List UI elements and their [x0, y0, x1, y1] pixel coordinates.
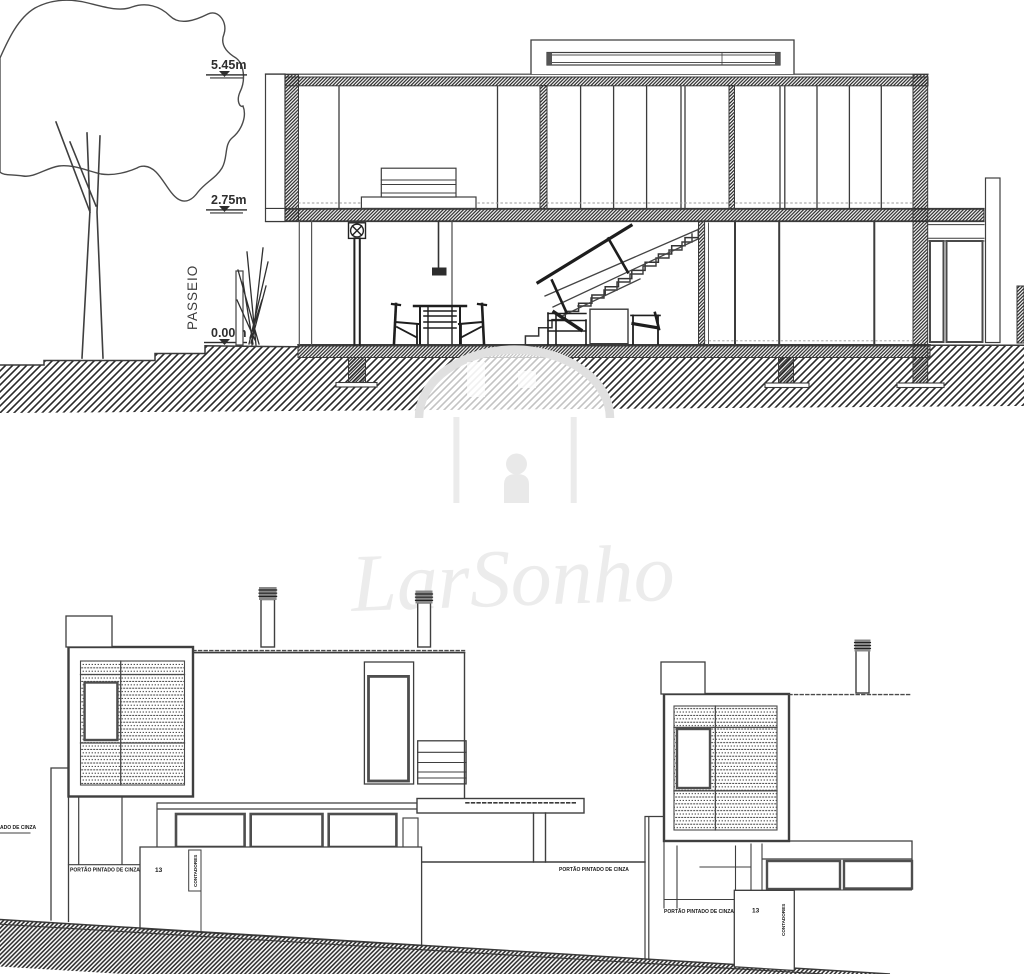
svg-text:PORTÃO PINTADO DE CINZA: PORTÃO PINTADO DE CINZA	[559, 866, 629, 873]
svg-text:CONTADORES: CONTADORES	[781, 904, 786, 936]
svg-text:5.45m: 5.45m	[211, 58, 246, 72]
svg-text:2.75m: 2.75m	[211, 193, 246, 207]
svg-text:LarSonho: LarSonho	[348, 527, 675, 629]
svg-text:PORTÃO PINTADO DE CINZA: PORTÃO PINTADO DE CINZA	[70, 867, 140, 874]
svg-text:ADO DE CINZA: ADO DE CINZA	[0, 825, 37, 831]
svg-text:13: 13	[155, 867, 163, 874]
svg-text:PORTÃO PINTADO DE CINZA: PORTÃO PINTADO DE CINZA	[664, 908, 734, 915]
svg-text:13: 13	[752, 908, 760, 915]
svg-text:PASSEIO: PASSEIO	[185, 265, 200, 330]
svg-text:CONTADORES: CONTADORES	[193, 855, 198, 887]
